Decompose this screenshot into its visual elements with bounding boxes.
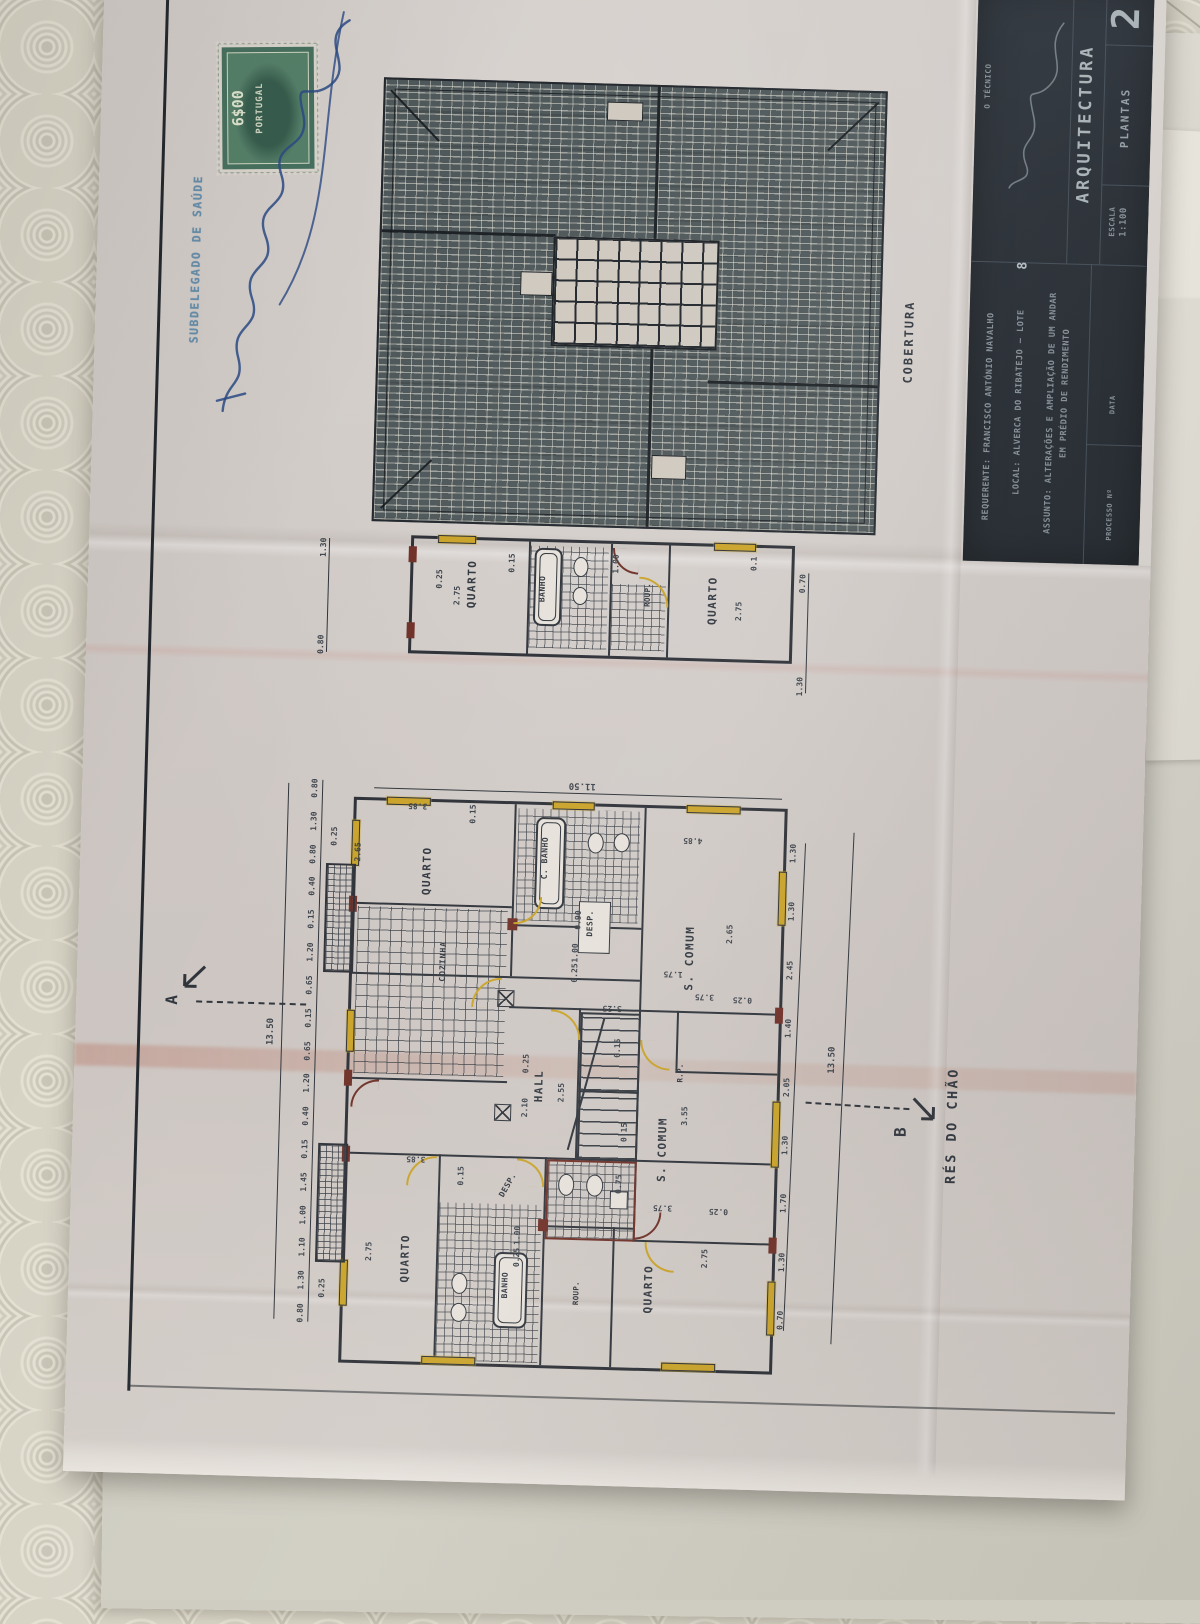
room-scomum-1: S. COMUM [683, 926, 696, 991]
section-marker-b-letter: B [893, 1127, 909, 1137]
dim-27: 0.75 [615, 1175, 624, 1194]
dim-21: 3.85 [406, 1154, 425, 1163]
tb-divider-5 [971, 261, 1147, 267]
upper-dim-1: 2.75 [453, 586, 462, 605]
upper-window-2 [714, 543, 756, 552]
dim-2: 3.85 [408, 801, 427, 810]
chain-left-3: 0.40 [308, 877, 318, 897]
roof-hip-tr [827, 102, 879, 152]
chain-right-1: 1.30 [787, 902, 797, 922]
tb-divider-4 [1101, 184, 1149, 186]
chain-left-7: 0.15 [304, 1008, 314, 1028]
dim-7: 4.85 [683, 836, 702, 845]
tb-divider-7 [1086, 444, 1142, 447]
title-block: 2 O TÉCNICO ARQUITECTURA PLANTAS ESCALA … [963, 0, 1155, 566]
dim-9: 1.75 [663, 969, 682, 978]
tb-divider-6 [1083, 264, 1092, 564]
room-quarto-br: QUARTO [642, 1265, 654, 1314]
chain-left-5: 1.20 [306, 942, 316, 962]
official-stamp-text: SUBDELEGADO DE SAÚDE [187, 175, 206, 344]
upper-chain-left-1: 0.80 [316, 635, 326, 655]
approval-signature [210, 3, 372, 437]
chain-right-2: 2.45 [785, 960, 795, 980]
section-line-a [196, 1000, 306, 1005]
chain-left-6: 0.65 [305, 975, 315, 995]
tb-tecnico-label: O TÉCNICO [984, 63, 993, 108]
dim-5: 1.00 [571, 943, 580, 962]
upper-chain-left-0: 1.30 [319, 538, 329, 558]
roof-skylight-grid [551, 236, 720, 351]
upper-dim-5: 0.1 [750, 556, 758, 571]
floor-plan-title: RÉS DO CHÃO [945, 1067, 962, 1184]
section-marker-a-arrow [180, 960, 211, 991]
room-roup-b: ROUP. [572, 1281, 580, 1305]
dim-8: 2.65 [726, 925, 735, 944]
upper-dim-4: 2.75 [735, 602, 744, 621]
balcony-2 [315, 1143, 348, 1263]
chain-left-10: 0.40 [301, 1106, 311, 1126]
overall-dim-right-line [830, 833, 854, 1345]
room-scomum-2: S. COMUM [656, 1117, 669, 1182]
upper-chain-right-1: 1.30 [795, 677, 805, 697]
upper-pier-2 [406, 622, 414, 638]
tb-local: LOCAL: ALVERCA DO RIBATEJO — LOTE [1012, 309, 1026, 495]
window-top-3 [687, 805, 741, 815]
frame-line-bottom [127, 1385, 1115, 1415]
pier-2 [344, 1070, 352, 1086]
window-left-3 [339, 1260, 348, 1306]
door-arc-4 [639, 1040, 670, 1071]
overall-dim-left-line [273, 783, 289, 1319]
overall-dim-right: 13.50 [828, 1047, 838, 1074]
stair-flight-1 [579, 1012, 641, 1094]
duct-symbol-2 [494, 1104, 511, 1121]
room-cozinha: COZINHA [439, 941, 448, 982]
upper-room-roup: ROUP. [644, 583, 652, 607]
chain-left-12: 1.45 [299, 1172, 309, 1192]
tb-sheet-number: 2 [1107, 6, 1146, 31]
chain-left-1: 1.30 [309, 811, 319, 831]
chain-right-5: 1.30 [781, 1136, 791, 1156]
tb-discipline: ARQUITECTURA [1075, 44, 1096, 203]
dim-25: 1.00 [513, 1226, 522, 1245]
door-arc-3 [550, 1009, 581, 1040]
stair-flight-2 [577, 1090, 639, 1162]
room-banho-b: BANHO [501, 1272, 510, 1299]
dim-6: 0.25 [571, 963, 580, 982]
dim-10: 3.75 [695, 992, 714, 1001]
section-line-b [806, 1102, 910, 1111]
chain-right-3: 1.40 [784, 1019, 794, 1039]
upper-window-1 [438, 535, 476, 544]
roof-plan-title: COBERTURA [902, 300, 916, 383]
window-bottom-2 [661, 1363, 715, 1373]
dim-23: 2.75 [365, 1242, 374, 1261]
dim-20: 2.75 [701, 1249, 710, 1268]
dim-22: 0.15 [457, 1166, 466, 1185]
chain-left-9: 1.20 [302, 1074, 312, 1094]
tb-assunto-1: ASSUNTO: ALTERAÇÕES E AMPLIAÇÃO DE UM AN… [1043, 292, 1058, 534]
plan-sheet: 6$00 PORTUGAL SUBDELEGADO DE SAÚDE COBER… [63, 0, 1167, 1501]
chain-right-4: 2.05 [782, 1077, 792, 1097]
roof-chimney-3 [651, 455, 687, 480]
dim-0: 0.25 [331, 826, 340, 845]
dim-15: 0.25 [522, 1054, 531, 1073]
wall-p [609, 1227, 615, 1367]
section-marker-a-letter: A [164, 995, 180, 1005]
roof-chimney-2 [520, 271, 553, 296]
photo-canvas: { "colors": { "paper": "#cfc9c4", "ink":… [0, 0, 1200, 1600]
frame-line-left [127, 0, 170, 1391]
tb-requerente: REQUERENTE: FRANCISCO ANTÓNIO NAVALHO [982, 312, 996, 520]
upper-dim-0: 0.25 [436, 569, 445, 588]
overall-dim-left: 13.50 [266, 1018, 276, 1045]
dim-3: 0.15 [469, 804, 478, 823]
wall-j [675, 1011, 679, 1071]
upper-pier-1 [408, 546, 416, 562]
dim-18: 3.75 [653, 1203, 672, 1212]
chain-right-0: 1.30 [789, 844, 799, 864]
window-left-2 [346, 1010, 355, 1052]
dim-19: 0.25 [709, 1207, 728, 1216]
dim-1: 2.65 [354, 842, 363, 861]
upper-room-banho: BANHO [538, 576, 547, 603]
chain-left-13: 1.00 [298, 1205, 308, 1225]
section-marker-b-arrow [907, 1092, 938, 1123]
tb-lote-number: 8 [1016, 261, 1029, 270]
pier-7 [538, 1219, 548, 1231]
chain-right-6: 1.70 [779, 1194, 789, 1214]
dim-11: 0.25 [733, 995, 752, 1004]
overall-dim-top: 11.50 [569, 780, 596, 790]
dim-28: 0.15 [620, 1123, 629, 1142]
chain-left-0: 0.80 [310, 778, 320, 798]
tb-assunto-2: EM PRÉDIO DE RENDIMENTO [1059, 329, 1071, 458]
dim-16: 0.15 [614, 1038, 623, 1057]
room-quarto-bl: QUARTO [399, 1234, 411, 1283]
window-bottom-1 [421, 1356, 475, 1366]
chain-left-14: 1.10 [298, 1238, 308, 1258]
window-top-2 [553, 801, 595, 810]
dim-13: 2.55 [557, 1083, 566, 1102]
wall-g [509, 1006, 779, 1016]
dim-17: 3.55 [681, 1106, 690, 1125]
upper-dim-2: 0.15 [508, 553, 517, 572]
balcony-1 [323, 863, 356, 973]
roof-hip-bl [380, 459, 432, 509]
tb-technician-signature [995, 11, 1080, 193]
dim-24: 0.25 [318, 1278, 327, 1297]
bathtub-1 [534, 817, 567, 910]
room-desp-1: DESP. [586, 910, 595, 937]
tb-divider-3 [1105, 44, 1153, 46]
tb-data-label: DATA [1109, 395, 1117, 414]
tb-escala-value: 1:100 [1119, 207, 1129, 237]
room-hall: HALL [533, 1070, 545, 1103]
chain-left-11: 0.15 [300, 1139, 310, 1159]
upper-room-quarto-right: QUARTO [706, 576, 718, 625]
room-quarto-tl: QUARTO [421, 846, 433, 895]
chain-left-8: 0.65 [303, 1041, 313, 1061]
upper-dim-3: 1.00 [612, 554, 621, 573]
wall-k [675, 1071, 777, 1076]
door-arc-9 [350, 1079, 379, 1108]
dim-4: 0.90 [574, 910, 583, 929]
upper-room-quarto-left: QUARTO [466, 559, 478, 608]
door-arc-7 [633, 1212, 662, 1241]
bathtub-2 [492, 1252, 528, 1329]
tb-processo-label: PROCESSO Nº [1106, 489, 1114, 541]
vertical-crease [915, 0, 977, 1495]
chain-left-15: 1.30 [297, 1270, 307, 1290]
chain-left-2: 0.80 [309, 844, 319, 864]
roof-ridge-left [382, 229, 556, 236]
tb-drawing-type: PLANTAS [1119, 88, 1132, 149]
roof-chimney-1 [607, 102, 644, 122]
roof-hip-tl [390, 90, 440, 142]
roof-ridge-right [708, 380, 878, 387]
tb-escala-label: ESCALA [1108, 207, 1116, 237]
roof-ridge-vertical [646, 87, 661, 527]
upper-chain-right-0: 0.70 [798, 574, 808, 594]
dim-14: 2.10 [521, 1098, 530, 1117]
dim-12: 3.25 [602, 1004, 621, 1013]
dim-26: 0.25 [513, 1248, 522, 1267]
roof-plan [372, 77, 888, 535]
room-rp: R.P. [676, 1063, 684, 1082]
room-cbanho: C. BANHO [541, 837, 550, 880]
chain-left-16: 0.80 [296, 1303, 306, 1323]
door-arc-6 [516, 1158, 545, 1187]
chain-left-4: 0.15 [307, 910, 317, 930]
